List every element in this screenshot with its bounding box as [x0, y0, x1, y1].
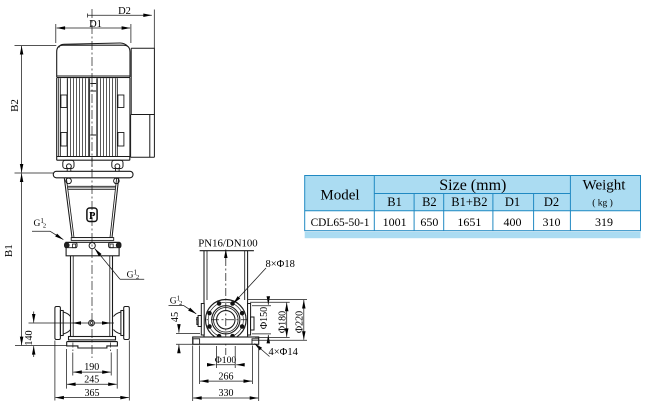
- svg-text:45: 45: [170, 312, 181, 322]
- svg-text:365: 365: [85, 388, 100, 399]
- svg-text:1651: 1651: [457, 215, 481, 229]
- svg-text:B1: B1: [3, 244, 15, 257]
- svg-text:245: 245: [84, 375, 99, 386]
- svg-text:B2: B2: [422, 195, 437, 209]
- svg-text:8×Φ18: 8×Φ18: [266, 259, 295, 270]
- svg-text:1001: 1001: [383, 215, 407, 229]
- svg-text:400: 400: [504, 215, 522, 229]
- svg-text:310: 310: [543, 215, 561, 229]
- svg-text:PN16/DN100: PN16/DN100: [198, 237, 257, 249]
- svg-text:G12: G12: [34, 217, 47, 230]
- svg-text:Φ150: Φ150: [259, 307, 270, 329]
- svg-text:B2: B2: [9, 99, 21, 112]
- svg-text:B1+B2: B1+B2: [451, 195, 487, 209]
- svg-text:140: 140: [24, 330, 35, 345]
- svg-text:319: 319: [595, 215, 613, 229]
- svg-text:4×Φ14: 4×Φ14: [269, 347, 299, 358]
- svg-text:D2: D2: [544, 195, 559, 209]
- svg-text:D1: D1: [89, 19, 102, 30]
- svg-text:D1: D1: [505, 195, 520, 209]
- svg-text:G12: G12: [127, 269, 140, 282]
- svg-text:Φ100: Φ100: [215, 355, 237, 366]
- svg-text:D2: D2: [118, 6, 131, 17]
- svg-text:650: 650: [420, 215, 438, 229]
- svg-text:266: 266: [219, 372, 234, 383]
- svg-text:Size (mm): Size (mm): [439, 177, 506, 194]
- svg-text:330: 330: [219, 388, 234, 399]
- svg-text:Weight: Weight: [583, 178, 627, 194]
- svg-text:Model: Model: [320, 187, 359, 203]
- svg-text:Φ220: Φ220: [294, 311, 305, 333]
- svg-text:B1: B1: [387, 195, 402, 209]
- svg-text:P: P: [89, 211, 96, 222]
- svg-text:CDL65-50-1: CDL65-50-1: [311, 217, 370, 229]
- svg-text:190: 190: [84, 362, 99, 373]
- svg-text:Φ180: Φ180: [277, 311, 288, 333]
- svg-text:( kg ): ( kg ): [592, 198, 613, 209]
